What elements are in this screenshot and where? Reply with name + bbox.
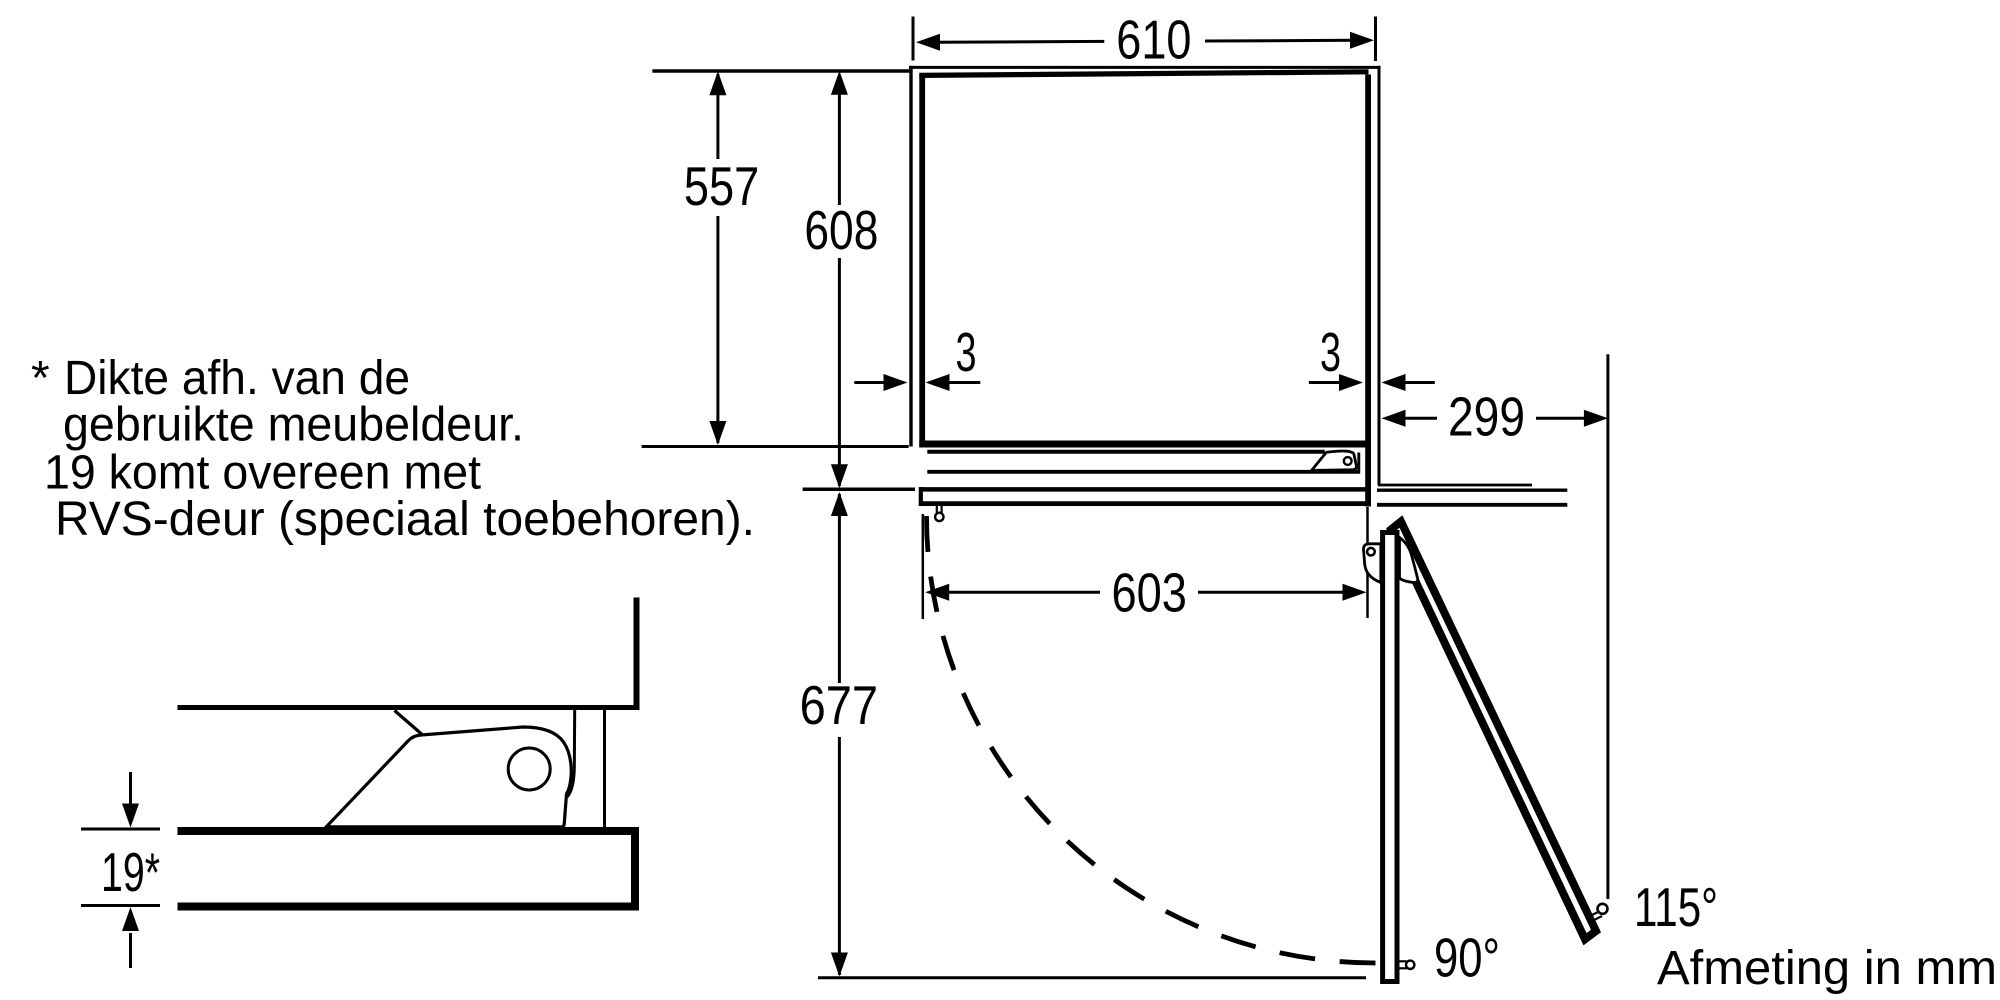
svg-text:677: 677: [800, 674, 878, 736]
svg-text:RVS-deur (speciaal toebehoren): RVS-deur (speciaal toebehoren).: [55, 493, 755, 546]
svg-text:19 komt overeen met: 19 komt overeen met: [44, 447, 481, 500]
svg-text:*: *: [31, 352, 50, 405]
svg-text:Afmeting in mm: Afmeting in mm: [1657, 942, 1997, 995]
svg-text:557: 557: [684, 155, 759, 217]
svg-text:115°: 115°: [1634, 876, 1718, 938]
svg-text:3: 3: [1320, 321, 1341, 383]
svg-text:3: 3: [956, 321, 977, 383]
svg-text:299: 299: [1448, 386, 1525, 448]
svg-text:19*: 19*: [101, 841, 160, 903]
svg-text:gebruikte meubeldeur.: gebruikte meubeldeur.: [63, 399, 524, 452]
svg-text:Dikte afh. van de: Dikte afh. van de: [64, 352, 410, 405]
svg-text:603: 603: [1112, 561, 1187, 623]
svg-text:610: 610: [1116, 9, 1191, 71]
svg-text:608: 608: [804, 199, 878, 261]
svg-text:90°: 90°: [1434, 926, 1500, 988]
